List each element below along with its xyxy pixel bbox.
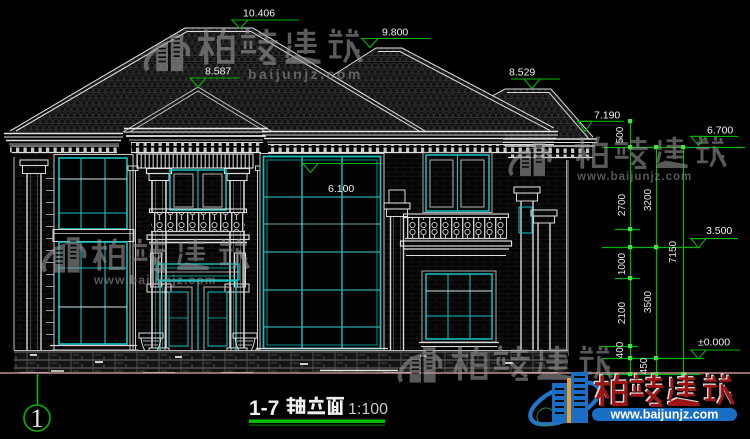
svg-text:450: 450 <box>639 357 650 374</box>
svg-text:7.190: 7.190 <box>594 110 620 122</box>
svg-text:3.500: 3.500 <box>706 225 732 237</box>
svg-text:8.587: 8.587 <box>205 66 231 78</box>
svg-text:3500: 3500 <box>643 290 654 313</box>
svg-text:6.700: 6.700 <box>707 125 733 137</box>
svg-text:3200: 3200 <box>643 188 654 211</box>
svg-text:10.406: 10.406 <box>243 8 275 20</box>
svg-text:400: 400 <box>615 341 626 358</box>
svg-text:baijunjz.com: baijunjz.com <box>248 66 363 82</box>
svg-text:1000: 1000 <box>617 252 628 275</box>
svg-text:1-7: 1-7 <box>249 397 279 420</box>
svg-text:1:100: 1:100 <box>348 401 388 418</box>
svg-text:2100: 2100 <box>617 301 628 324</box>
svg-text:1: 1 <box>31 404 44 433</box>
svg-text:6.100: 6.100 <box>328 183 354 195</box>
svg-text:www.baijunjz.com: www.baijunjz.com <box>610 408 719 422</box>
svg-text:9.800: 9.800 <box>382 27 408 39</box>
svg-text:8.529: 8.529 <box>509 67 535 79</box>
svg-text:2700: 2700 <box>617 193 628 216</box>
svg-text:www.baijunjz.com: www.baijunjz.com <box>576 171 692 183</box>
svg-text:7150: 7150 <box>668 240 679 263</box>
svg-text:www.baijunjz.com: www.baijunjz.com <box>93 273 217 287</box>
svg-text:±0.000: ±0.000 <box>698 337 730 349</box>
